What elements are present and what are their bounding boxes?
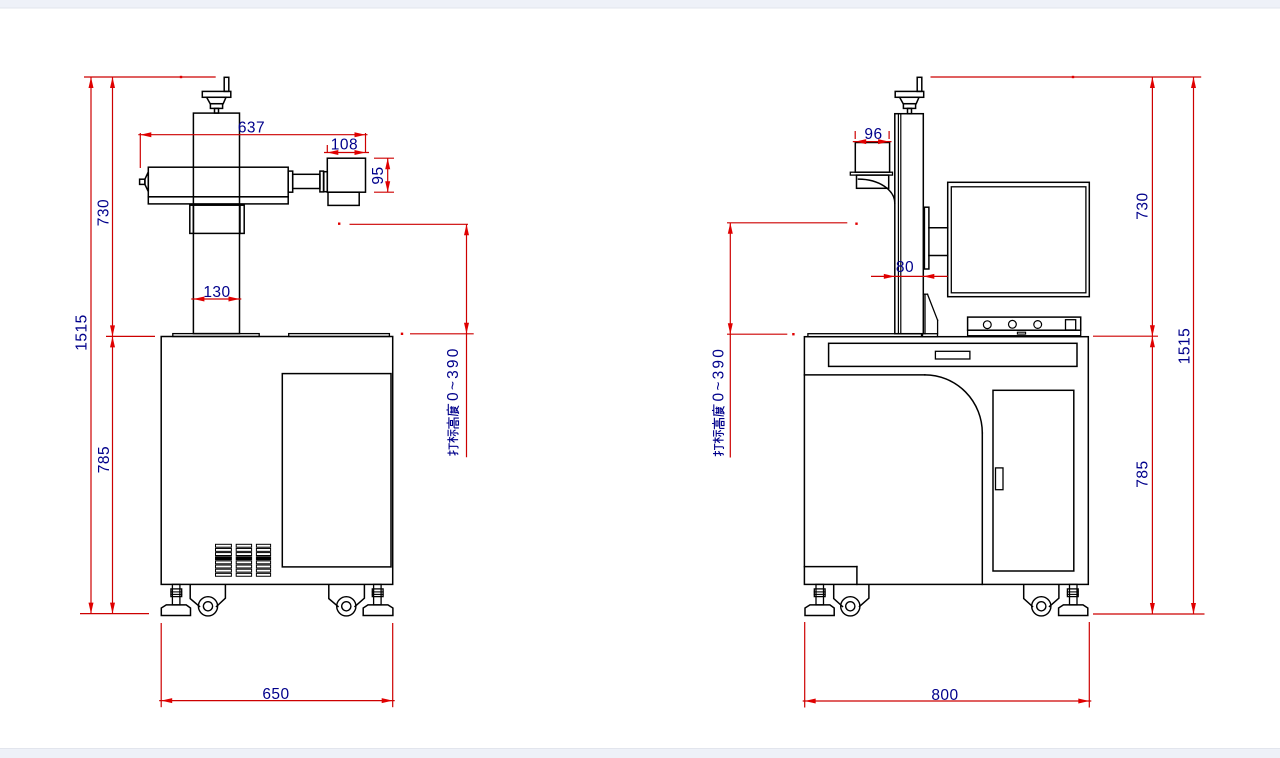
svg-text:108: 108	[331, 137, 358, 154]
svg-text:800: 800	[931, 687, 958, 704]
svg-text:650: 650	[262, 686, 289, 703]
svg-text:785: 785	[1135, 460, 1152, 487]
svg-text:637: 637	[238, 120, 265, 137]
svg-text:730: 730	[95, 199, 112, 226]
svg-text:1515: 1515	[1177, 328, 1194, 364]
svg-text:130: 130	[203, 284, 230, 301]
svg-text:730: 730	[1135, 192, 1152, 219]
svg-text:96: 96	[864, 126, 882, 143]
svg-text:1515: 1515	[73, 314, 90, 350]
svg-text:785: 785	[96, 446, 113, 473]
svg-text:95: 95	[370, 166, 387, 184]
svg-text:80: 80	[896, 259, 914, 276]
